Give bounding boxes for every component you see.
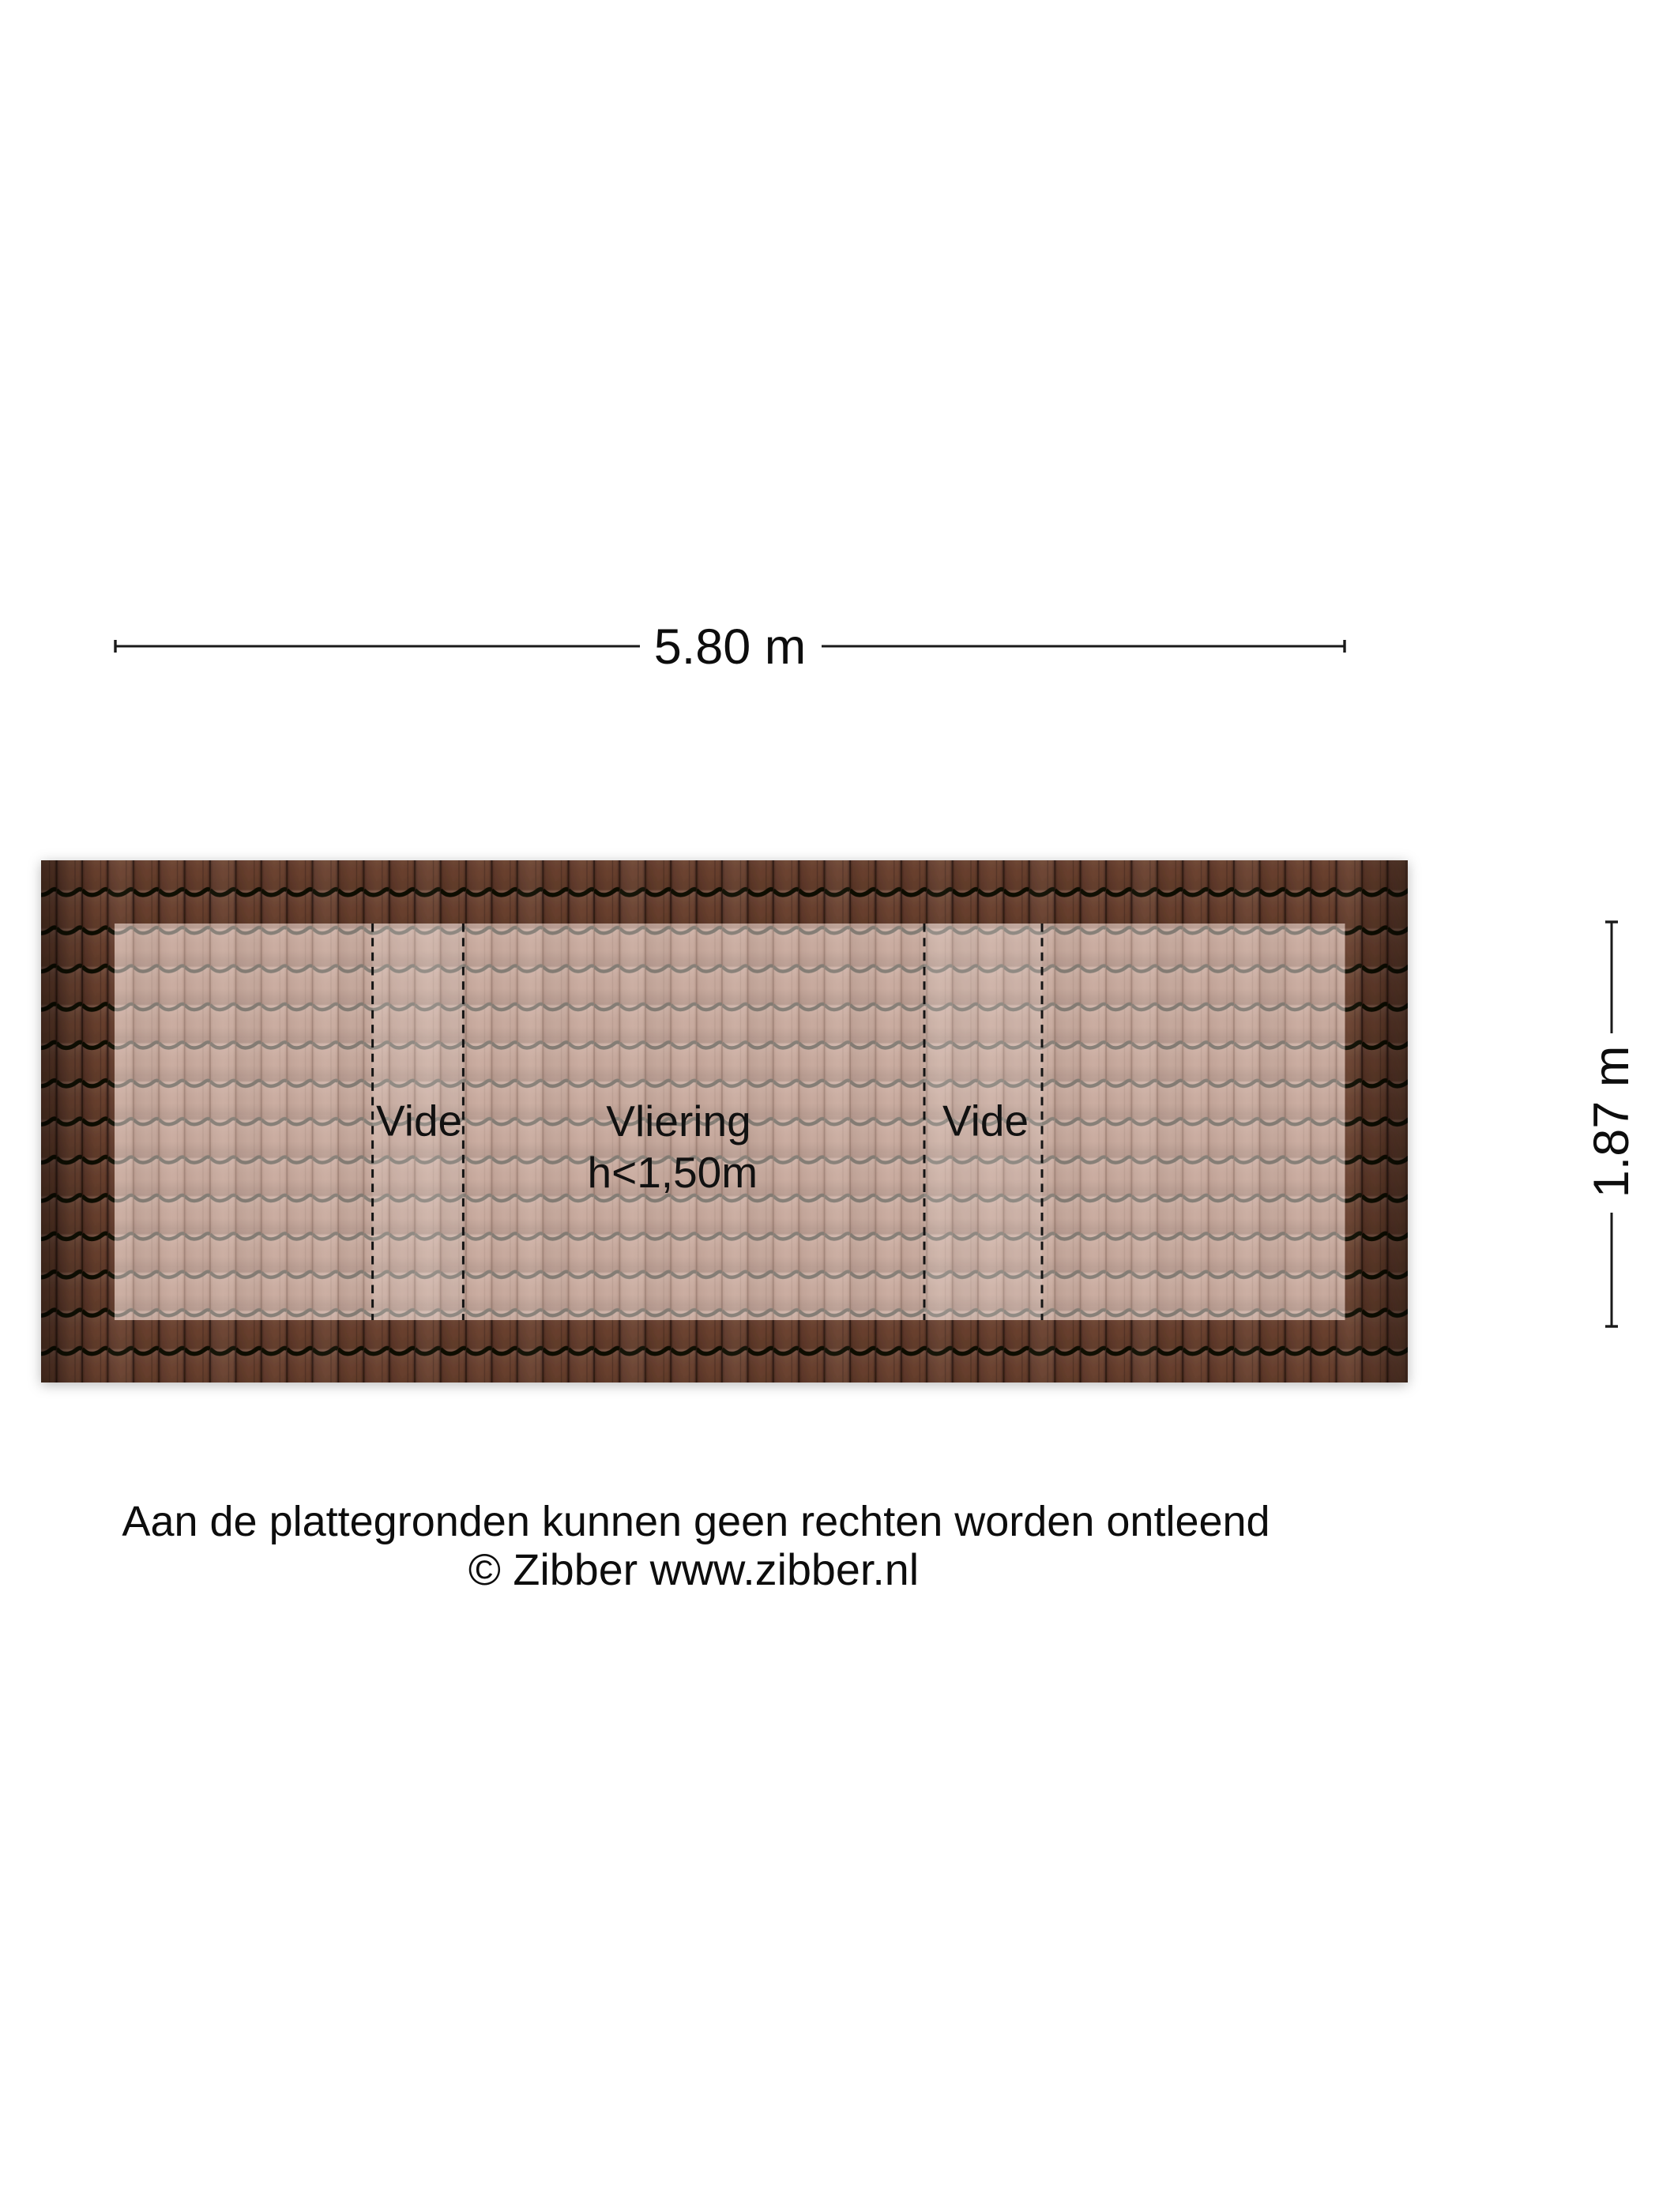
svg-text:1.87 m: 1.87 m	[1584, 1046, 1639, 1198]
svg-text:Vliering: Vliering	[606, 1097, 750, 1145]
svg-text:Vide: Vide	[376, 1097, 462, 1145]
svg-text:Vide: Vide	[942, 1097, 1029, 1145]
svg-text:h<1,50m: h<1,50m	[588, 1148, 758, 1197]
svg-text:Aan de plattegronden kunnen ge: Aan de plattegronden kunnen geen rechten…	[122, 1498, 1270, 1545]
svg-text:© Zibber www.zibber.nl: © Zibber www.zibber.nl	[468, 1545, 919, 1594]
svg-text:5.80 m: 5.80 m	[654, 619, 807, 675]
